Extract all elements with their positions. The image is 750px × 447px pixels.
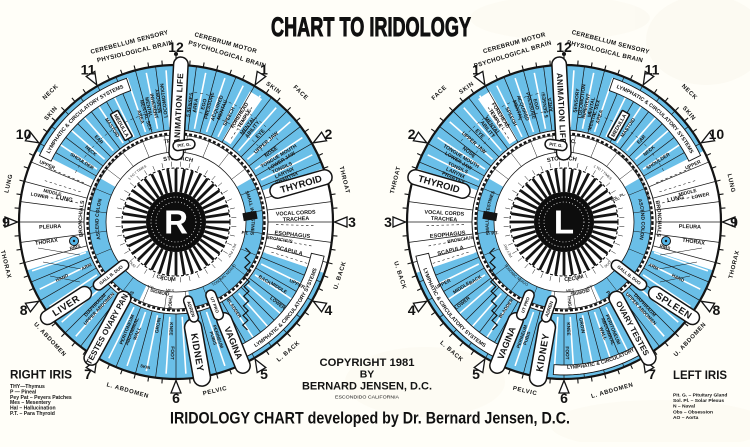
svg-text:5: 5 xyxy=(472,366,480,382)
svg-text:PLEURA: PLEURA xyxy=(39,224,61,231)
svg-text:4: 4 xyxy=(325,302,333,318)
svg-text:6: 6 xyxy=(560,390,568,406)
svg-text:8: 8 xyxy=(713,302,721,318)
svg-text:6: 6 xyxy=(172,390,180,406)
svg-text:3: 3 xyxy=(384,214,392,230)
svg-text:5: 5 xyxy=(260,366,268,382)
svg-text:THIGH: THIGH xyxy=(166,295,173,311)
svg-text:R: R xyxy=(164,204,188,241)
svg-text:10: 10 xyxy=(16,126,32,142)
svg-text:Pit. G. – Pituitary Gland: Pit. G. – Pituitary Gland xyxy=(673,393,727,399)
svg-text:Sol. Pl. – Solar Plexus: Sol. Pl. – Solar Plexus xyxy=(673,398,724,404)
svg-text:KNEE: KNEE xyxy=(565,322,572,336)
svg-text:3: 3 xyxy=(348,214,356,230)
svg-text:COPYRIGHT 1981: COPYRIGHT 1981 xyxy=(320,357,415,369)
svg-text:2: 2 xyxy=(325,126,333,142)
svg-text:LEFT IRIS: LEFT IRIS xyxy=(673,370,727,382)
svg-text:KNEE: KNEE xyxy=(167,322,174,336)
svg-text:FOOT: FOOT xyxy=(564,346,570,360)
svg-text:10: 10 xyxy=(709,126,725,142)
svg-text:ESCONDIDO CALIFORNIA: ESCONDIDO CALIFORNIA xyxy=(335,395,400,401)
svg-text:IRIDOLOGY CHART developed by D: IRIDOLOGY CHART developed by Dr. Bernard… xyxy=(170,410,570,428)
svg-text:P.T. – Para Thyroid: P.T. – Para Thyroid xyxy=(10,411,55,417)
svg-text:N – Naval: N – Naval xyxy=(673,404,696,410)
svg-text:L: L xyxy=(554,204,574,241)
svg-text:11: 11 xyxy=(645,61,660,77)
svg-text:THIGH: THIGH xyxy=(565,295,572,311)
svg-text:Obs – Obsession: Obs – Obsession xyxy=(673,409,713,415)
svg-text:9: 9 xyxy=(730,214,738,230)
svg-text:FOOT: FOOT xyxy=(169,346,175,360)
svg-text:9: 9 xyxy=(2,214,10,230)
svg-text:CHART TO IRIDOLOGY: CHART TO IRIDOLOGY xyxy=(271,12,471,42)
svg-text:8: 8 xyxy=(20,302,28,318)
svg-text:MES: MES xyxy=(566,288,575,293)
svg-text:7: 7 xyxy=(84,366,92,382)
svg-text:BY: BY xyxy=(360,369,375,381)
svg-text:MES: MES xyxy=(166,288,175,293)
svg-text:PLEURA: PLEURA xyxy=(679,224,701,231)
svg-text:11: 11 xyxy=(81,61,96,77)
svg-text:7: 7 xyxy=(648,366,656,382)
svg-text:4: 4 xyxy=(408,302,416,318)
svg-text:RIGHT IRIS: RIGHT IRIS xyxy=(10,370,72,382)
svg-text:AO – Aorta: AO – Aorta xyxy=(673,415,699,421)
svg-text:BERNARD JENSEN, D.C.: BERNARD JENSEN, D.C. xyxy=(302,381,432,393)
svg-text:2: 2 xyxy=(408,126,416,142)
